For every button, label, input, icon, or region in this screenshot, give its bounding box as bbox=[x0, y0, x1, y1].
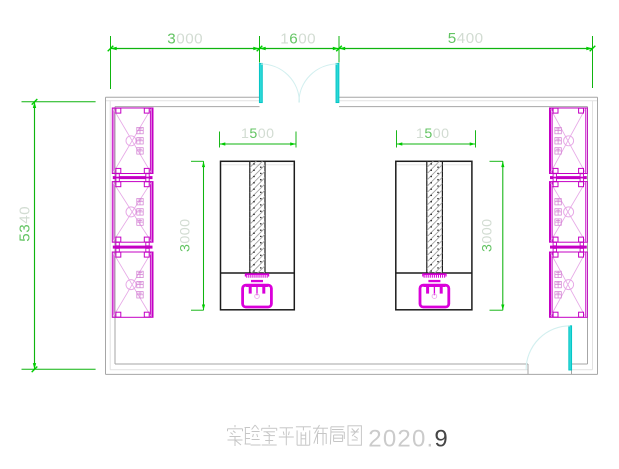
svg-text:1500: 1500 bbox=[241, 126, 275, 142]
svg-text:1600: 1600 bbox=[280, 31, 316, 48]
svg-text:1500: 1500 bbox=[416, 126, 450, 142]
svg-text:5400: 5400 bbox=[448, 30, 484, 47]
svg-text:3000: 3000 bbox=[480, 218, 496, 252]
svg-text:3000: 3000 bbox=[167, 31, 203, 48]
svg-text:3000: 3000 bbox=[178, 218, 194, 252]
svg-text:2020.9: 2020.9 bbox=[368, 425, 449, 452]
svg-text:5340: 5340 bbox=[17, 206, 34, 242]
